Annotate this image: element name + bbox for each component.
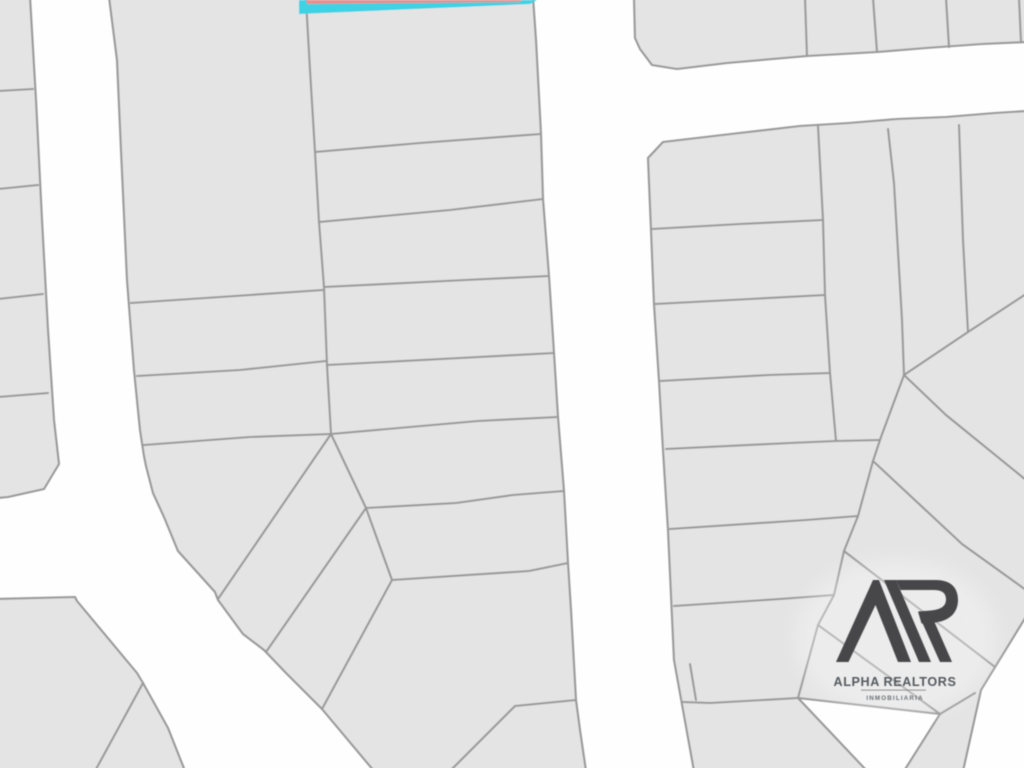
svg-text:ALPHA REALTORS: ALPHA REALTORS [834, 675, 957, 689]
svg-text:INMOBILIARIA: INMOBILIARIA [866, 695, 923, 702]
